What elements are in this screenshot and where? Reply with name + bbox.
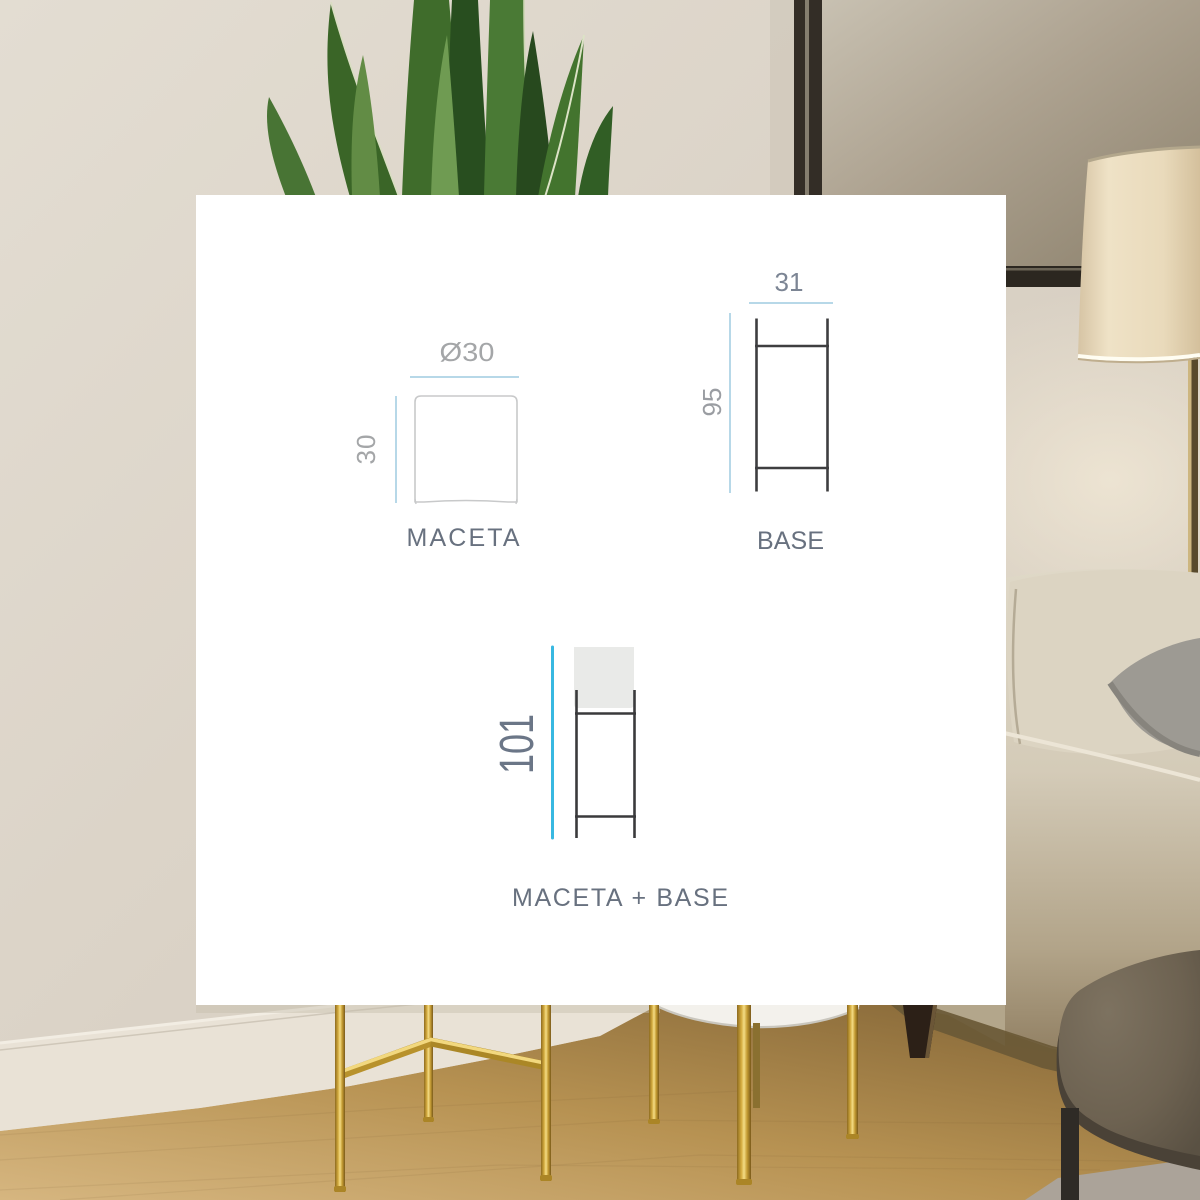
svg-text:101: 101	[491, 714, 544, 774]
svg-text:95: 95	[697, 388, 727, 417]
svg-text:31: 31	[775, 267, 804, 297]
svg-text:BASE: BASE	[757, 527, 824, 555]
svg-text:MACETA: MACETA	[407, 524, 520, 552]
svg-text:30: 30	[351, 434, 381, 465]
svg-text:MACETA + BASE: MACETA + BASE	[512, 884, 728, 912]
svg-text:Ø30: Ø30	[440, 337, 495, 367]
